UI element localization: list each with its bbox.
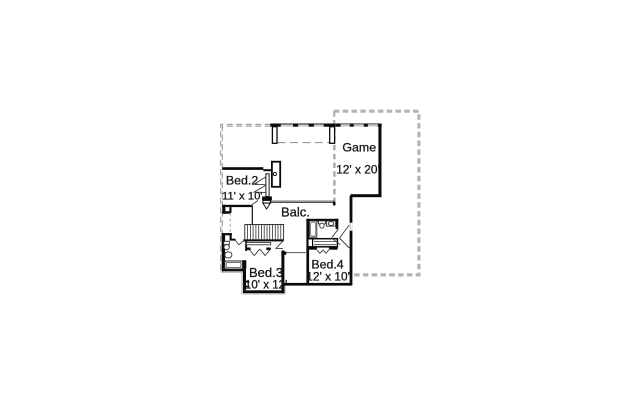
svg-text:10' x 12': 10' x 12': [245, 279, 287, 292]
svg-text:11' x 10': 11' x 10': [222, 190, 263, 202]
svg-text:Game: Game: [342, 141, 376, 155]
svg-text:12' x 20': 12' x 20': [336, 163, 380, 177]
svg-text:12' x 10': 12' x 10': [306, 270, 350, 284]
svg-text:Bed.3: Bed.3: [249, 265, 283, 280]
svg-text:Bed.2: Bed.2: [226, 173, 258, 187]
svg-text:Balc.: Balc.: [281, 205, 310, 220]
